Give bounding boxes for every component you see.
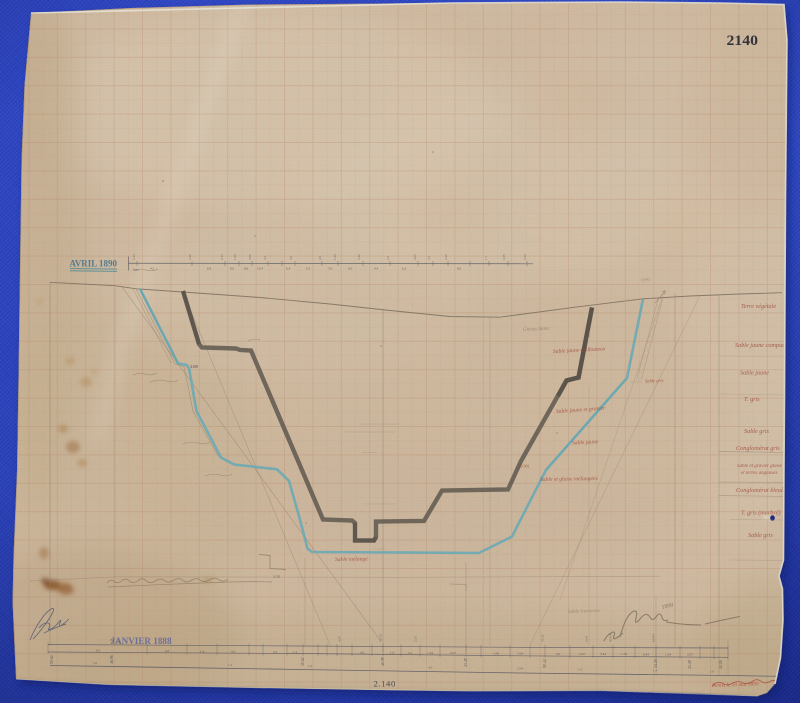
svg-text:1.36: 1.36: [621, 652, 627, 656]
svg-text:1.2: 1.2: [228, 663, 233, 667]
svg-text:8.44: 8.44: [643, 652, 649, 656]
svg-text:2.8: 2.8: [273, 650, 278, 654]
svg-text:5.6: 5.6: [328, 267, 333, 271]
svg-text:10.62: 10.62: [301, 657, 305, 666]
svg-text:JANVIER 1888: JANVIER 1888: [111, 637, 172, 647]
svg-text:2.07: 2.07: [687, 653, 693, 657]
svg-text:4.6: 4.6: [231, 650, 236, 654]
svg-text:(0.90): (0.90): [519, 464, 530, 469]
svg-text:1.0: 1.0: [710, 669, 715, 673]
svg-text:Sable limoneux: Sable limoneux: [568, 608, 601, 615]
svg-text:T. gris: T. gris: [744, 396, 760, 403]
svg-text:1.06: 1.06: [493, 651, 499, 655]
svg-text:4.4: 4.4: [374, 267, 379, 271]
svg-text:2.40: 2.40: [523, 254, 527, 260]
svg-text:3.1: 3.1: [427, 256, 431, 260]
svg-text:2.15: 2.15: [414, 636, 418, 642]
svg-text:Conglomérat gris: Conglomérat gris: [736, 445, 780, 452]
svg-text:3.4: 3.4: [408, 651, 413, 655]
svg-text:1.4: 1.4: [200, 649, 205, 653]
svg-text:3.6: 3.6: [289, 256, 293, 260]
svg-text:5.0: 5.0: [93, 661, 98, 665]
svg-text:4.05: 4.05: [413, 254, 417, 260]
svg-text:2.8: 2.8: [318, 256, 322, 260]
svg-text:43.64: 43.64: [609, 634, 613, 642]
svg-text:1.0: 1.0: [578, 668, 583, 672]
svg-text:8.6: 8.6: [244, 267, 249, 271]
svg-text:et terres anglaises: et terres anglaises: [741, 471, 778, 476]
svg-text:43.72: 43.72: [379, 634, 383, 642]
svg-text:3.15: 3.15: [132, 254, 136, 260]
svg-text:4.0: 4.0: [556, 652, 561, 656]
svg-text:3.40: 3.40: [357, 254, 361, 260]
svg-text:7.04: 7.04: [517, 652, 523, 656]
svg-text:Sable et gravier glaise: Sable et gravier glaise: [737, 464, 783, 469]
svg-text:46.98: 46.98: [381, 657, 385, 666]
svg-text:3.44: 3.44: [600, 652, 606, 656]
svg-text:1.95: 1.95: [333, 254, 337, 260]
svg-text:4.0: 4.0: [428, 666, 433, 670]
svg-text:6.0: 6.0: [348, 267, 353, 271]
svg-text:1.2: 1.2: [293, 650, 298, 654]
svg-text:63.84: 63.84: [652, 634, 656, 642]
svg-text:4.2: 4.2: [150, 267, 155, 271]
svg-text:T. gris (marbré): T. gris (marbré): [741, 510, 781, 517]
svg-text:Terre végétale: Terre végétale: [741, 303, 776, 310]
svg-text:2.05: 2.05: [248, 254, 252, 260]
svg-text:1.4: 1.4: [653, 669, 658, 673]
svg-text:3.25: 3.25: [502, 254, 506, 260]
svg-text:3.15: 3.15: [220, 254, 224, 260]
svg-text:8.47: 8.47: [450, 651, 456, 655]
svg-text:Sable gris: Sable gris: [748, 532, 774, 539]
svg-text:9.0: 9.0: [96, 649, 101, 653]
svg-text:9.2: 9.2: [306, 267, 311, 271]
svg-text:4.47: 4.47: [338, 636, 342, 642]
svg-text:1.08: 1.08: [190, 364, 198, 369]
svg-text:44.26: 44.26: [654, 659, 658, 668]
svg-text:2140: 2140: [727, 33, 759, 49]
svg-text:Sable jaune: Sable jaune: [740, 370, 769, 377]
svg-text:45.11: 45.11: [541, 634, 545, 642]
svg-text:Sable gris: Sable gris: [744, 428, 770, 435]
svg-text:AVRIL 1890: AVRIL 1890: [70, 258, 118, 268]
svg-text:4.50: 4.50: [273, 574, 280, 579]
svg-text:2.40: 2.40: [188, 254, 192, 260]
svg-text:1.04: 1.04: [427, 651, 433, 655]
svg-text:6.8: 6.8: [207, 267, 212, 271]
svg-text:8.6: 8.6: [230, 267, 235, 271]
svg-text:1.80: 1.80: [233, 254, 237, 260]
svg-text:2.45: 2.45: [444, 254, 448, 260]
svg-text:44.26: 44.26: [719, 660, 723, 669]
svg-text:43.48: 43.48: [688, 660, 692, 669]
svg-text:43.48: 43.48: [464, 658, 468, 667]
svg-text:4.6: 4.6: [360, 651, 365, 655]
svg-text:8.0: 8.0: [457, 267, 462, 271]
svg-text:2.140: 2.140: [374, 679, 396, 689]
svg-text:6.2: 6.2: [402, 267, 407, 271]
svg-text:Conglomérat bleuâtre: Conglomérat bleuâtre: [736, 487, 791, 494]
svg-text:Sable et glaise mélangées: Sable et glaise mélangées: [540, 476, 598, 483]
svg-text:46.96: 46.96: [110, 655, 114, 664]
svg-text:1.0: 1.0: [308, 664, 313, 668]
svg-text:5.04: 5.04: [585, 636, 589, 642]
svg-text:0.6: 0.6: [165, 649, 170, 653]
svg-text:6.4: 6.4: [286, 267, 291, 271]
svg-text:1.6: 1.6: [390, 651, 395, 655]
svg-text:Sable gris: Sable gris: [645, 378, 664, 384]
svg-text:1.7: 1.7: [484, 256, 488, 260]
svg-text:10.4: 10.4: [257, 267, 263, 271]
svg-text:50.62: 50.62: [50, 655, 54, 664]
svg-text:Sable jaune compacte: Sable jaune compacte: [735, 342, 790, 349]
svg-text:1.04: 1.04: [665, 653, 671, 657]
svg-text:2.2: 2.2: [386, 256, 390, 260]
svg-text:Sable mélangé: Sable mélangé: [335, 556, 368, 563]
svg-text:2.04: 2.04: [517, 667, 523, 671]
svg-text:2.07: 2.07: [579, 652, 585, 656]
svg-text:50.44: 50.44: [543, 659, 547, 668]
svg-text:4.2: 4.2: [263, 256, 267, 260]
